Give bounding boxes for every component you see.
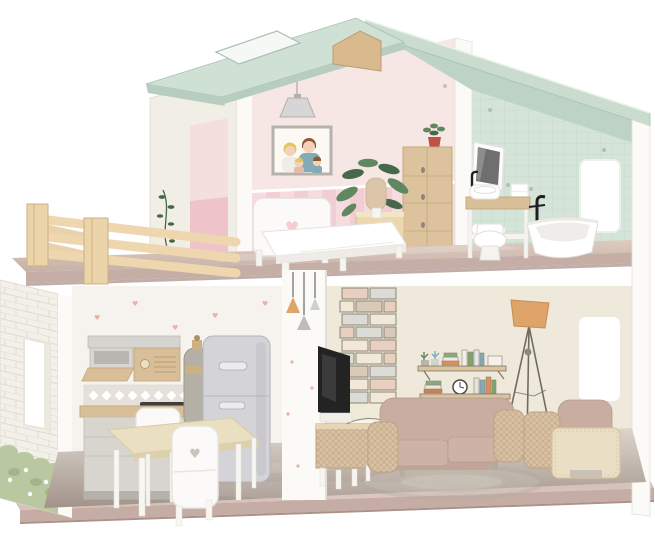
radio-knob — [141, 360, 150, 369]
heart-print: ♥ — [94, 314, 100, 322]
stand-leg — [352, 469, 357, 486]
tv — [318, 346, 352, 422]
range-hood — [82, 368, 134, 381]
sofa-cushion — [396, 440, 448, 466]
sofa-cushion — [448, 437, 498, 462]
fridge-handle — [219, 402, 245, 409]
fridge-handle — [219, 362, 247, 370]
chair-leg — [206, 500, 212, 520]
keyboard-remote — [320, 413, 352, 422]
table-leg — [252, 438, 256, 488]
chair-leg — [146, 454, 150, 506]
screw-dot — [488, 108, 492, 112]
radio-cabinet — [134, 348, 180, 381]
bed-leg — [340, 258, 346, 271]
chair-leg — [176, 506, 182, 526]
kitchen-wall-cabinet — [82, 336, 180, 381]
stand-leg — [336, 470, 341, 489]
dollhouse-scene: ♥ — [0, 0, 655, 541]
fence-post — [84, 218, 108, 284]
screw-dot — [443, 84, 447, 88]
living-room-window — [578, 316, 621, 402]
shelf-board — [418, 366, 506, 371]
heart-print: ♥ — [172, 324, 178, 332]
cylinder-strap — [186, 366, 204, 374]
lamp-shade — [511, 300, 549, 328]
armchair — [524, 400, 620, 478]
armchair-notch — [570, 470, 602, 478]
heart-print: ♥ — [212, 312, 218, 320]
sofa-arm — [368, 422, 398, 472]
bathroom-mirror — [472, 142, 504, 190]
window-reveal — [44, 343, 50, 430]
bedroom-corner-strip — [237, 75, 252, 266]
stand-leg — [320, 468, 325, 486]
sofa-leg — [488, 464, 493, 470]
sofa-arm — [494, 410, 524, 462]
family-portrait — [273, 127, 331, 174]
heart-print: ♥ — [262, 300, 268, 308]
sofa-leg — [400, 470, 405, 476]
table-leg — [114, 450, 119, 508]
table-leg — [139, 458, 145, 516]
door-opening — [190, 118, 228, 201]
fence-post — [27, 204, 48, 266]
washbasin — [470, 185, 500, 199]
heart-print: ♥ — [132, 300, 138, 308]
bed-leg — [396, 246, 402, 258]
dollhouse-photo: ♥ — [0, 0, 655, 541]
screw-dot — [602, 148, 606, 152]
table-leg — [236, 444, 241, 500]
heart-cutout: ♥ — [189, 447, 201, 462]
